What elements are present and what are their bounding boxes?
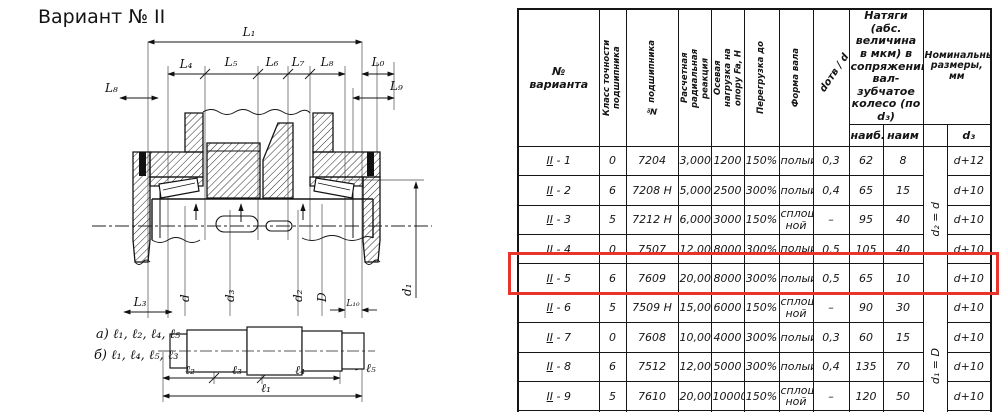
cell-nominal-mid: d₂ = d d₁ = D [923,146,947,412]
gear-tooth [263,123,293,198]
cell-radial: 20,000 [678,264,711,293]
cell-axial: 5000 [711,352,744,381]
cell-overload: 150% [744,293,779,322]
cell-tension-min: 30 [883,293,923,322]
cell-tension-min: 70 [883,352,923,381]
cell-shape: полый [779,323,813,352]
cell-d3: d+10 [947,176,991,205]
cell-axial: 10000 [711,381,744,410]
header-tension-min: наим [883,124,923,146]
cell-tension-min: 15 [883,323,923,352]
cell-variant: II - 1 [518,146,599,175]
cell-shape: сплош- ной [779,293,813,322]
cell-overload: 300% [744,176,779,205]
cell-ratio: 0,4 [813,176,849,205]
cell-bearing: 7512 [626,352,678,381]
cell-class: 0 [599,146,626,175]
dim-label-l2: ℓ₂ [185,363,195,377]
cell-d3: d+12 [947,146,991,175]
break-line-top [203,110,310,115]
cell-d3: d+10 [947,352,991,381]
cell-d3: d+10 [947,205,991,234]
dim-label-L4: L₄ [179,57,193,71]
header-nominal-mid [923,124,947,146]
cell-shape: сплош- ной [779,205,813,234]
dim-label-l5: ℓ₅ [366,361,376,375]
dim-label-L6: L₆ [265,55,279,69]
cell-variant: II - 4 [518,234,599,263]
cell-overload: 300% [744,264,779,293]
cell-radial: 3,000 [678,146,711,175]
cell-bearing: 7608 [626,323,678,352]
table-row-highlighted: II - 6 5 7509 Н 15,000 6000 150% сплош- … [518,293,991,322]
cell-tension-min: 40 [883,234,923,263]
header-overload: Перегрузка до [744,9,779,146]
cell-overload: 150% [744,146,779,175]
cell-variant: II - 7 [518,323,599,352]
nominal-mid-bottom: d₁ = D [929,348,942,384]
cell-tension-max: 105 [849,234,883,263]
dim-label-L1: L₁ [242,25,256,39]
cell-ratio: 0,4 [813,352,849,381]
cell-ratio: 0,3 [813,146,849,175]
cell-tension-min: 8 [883,146,923,175]
cell-axial: 8000 [711,234,744,263]
keyway-large [216,216,258,232]
cell-d3: d+10 [947,381,991,410]
cell-ratio: 0,5 [813,264,849,293]
cell-axial: 4000 [711,323,744,352]
cell-tension-max: 65 [849,264,883,293]
cell-axial: 3000 [711,205,744,234]
cell-tension-max: 135 [849,352,883,381]
header-shaft-form: Форма вала [779,9,813,146]
cell-variant: II - 9 [518,381,599,410]
reaction-arrows [196,204,303,222]
cell-bearing: 7204 [626,146,678,175]
cell-class: 0 [599,234,626,263]
header-tension-group: Натяги (абс. величина в мкм) в сопряжени… [849,9,923,124]
dim-label-d1: d₁ [400,284,414,297]
dim-label-L9: L₉ [389,79,403,93]
dim-label-l1: ℓ₁ [261,381,271,395]
dim-label-d: d [178,294,192,302]
cell-tension-max: 120 [849,381,883,410]
cell-radial: 15,000 [678,293,711,322]
dim-label-l3: ℓ₃ [232,363,242,377]
dim-label-d2: d₂ [291,289,305,302]
cell-tension-max: 65 [849,176,883,205]
cell-bearing: 7208 Н [626,176,678,205]
cell-tension-max: 60 [849,323,883,352]
cell-overload: 300% [744,323,779,352]
table-row: II - 2 6 7208 Н 5,000 2500 300% полый 0,… [518,176,991,205]
header-hole-ratio: dотв / d [813,9,849,146]
cell-variant: II - 5 [518,264,599,293]
table-row: II - 1 0 7204 3,000 1200 150% полый 0,3 … [518,146,991,175]
cell-radial: 10,000 [678,323,711,352]
cell-overload: 300% [744,234,779,263]
cell-variant: II - 3 [518,205,599,234]
assembly-drawing: L₁ L₄ L₅ L₆ L₇ L₈ L₀ L₉ L₈ L₃ L₁₀ d d₃ d… [0,0,505,412]
cell-overload: 150% [744,381,779,410]
cell-ratio: – [813,205,849,234]
table-row: II - 7 0 7608 10,000 4000 300% полый 0,3… [518,323,991,352]
dim-label-d3: d₃ [223,289,237,302]
break-line-shaft-left [152,238,200,243]
cell-variant: II - 6 [518,293,599,322]
cell-variant: II - 8 [518,352,599,381]
cell-class: 5 [599,293,626,322]
header-nominal-d3: d₃ [947,124,991,146]
dim-label-l4: ℓ₄ [295,363,305,377]
header-bearing-no: № подшипника [626,9,678,146]
cell-d3: d+10 [947,323,991,352]
cell-tension-min: 50 [883,381,923,410]
header-row: № варианта Класс точности подшипника № п… [518,9,991,124]
header-tension-max: наиб. [849,124,883,146]
table-row: II - 5 6 7609 20,000 8000 300% полый 0,5… [518,264,991,293]
cell-d3: d+10 [947,264,991,293]
note-a: а) ℓ₁, ℓ₂, ℓ₄, ℓ₅ [96,327,181,342]
cell-ratio: 0,5 [813,234,849,263]
note-b: б) ℓ₁, ℓ₄, ℓ₅, ℓ₃ [94,348,178,363]
cell-class: 6 [599,352,626,381]
cell-overload: 300% [744,352,779,381]
cell-tension-min: 40 [883,205,923,234]
cell-bearing: 7609 [626,264,678,293]
table-row: II - 8 6 7512 12,000 5000 300% полый 0,4… [518,352,991,381]
variants-table: № варианта Класс точности подшипника № п… [517,8,992,412]
cell-shape: полый [779,146,813,175]
cell-radial: 12,000 [678,234,711,263]
cell-axial: 2500 [711,176,744,205]
header-nominal-group: Номинальные размеры, мм [923,9,991,124]
cell-tension-max: 90 [849,293,883,322]
cell-bearing: 7610 [626,381,678,410]
cell-ratio: 0,3 [813,323,849,352]
cell-axial: 8000 [711,264,744,293]
header-accuracy-class: Класс точности подшипника [599,9,626,146]
cell-axial: 6000 [711,293,744,322]
cell-shape: сплош- ной [779,381,813,410]
dim-label-L0: L₀ [371,55,385,69]
cell-radial: 5,000 [678,176,711,205]
cell-variant: II - 2 [518,176,599,205]
cell-radial: 20,000 [678,381,711,410]
dim-label-L8-top: L₈ [320,55,334,69]
dim-label-L10: L₁₀ [345,299,360,309]
cell-ratio: – [813,293,849,322]
cell-radial: 12,000 [678,352,711,381]
cell-tension-min: 10 [883,264,923,293]
cell-bearing: 7507 [626,234,678,263]
cell-overload: 150% [744,205,779,234]
header-radial-reaction: Расчетная радиальная реакция опоры, Fr, … [678,9,711,146]
table-row: II - 9 5 7610 20,000 10000 150% сплош- н… [518,381,991,410]
table-row: II - 4 0 7507 12,000 8000 300% полый 0,5… [518,234,991,263]
cell-d3: d+10 [947,234,991,263]
cell-class: 6 [599,176,626,205]
document-page: Вариант № II [0,0,1000,412]
cell-ratio: – [813,381,849,410]
header-axial-load: Осевая нагрузка на опору Fa, Н [711,9,744,146]
dim-label-L3: L₃ [133,295,147,309]
cell-shape: полый [779,264,813,293]
dim-label-D: D [315,292,329,303]
cell-class: 5 [599,381,626,410]
nominal-mid-top: d₂ = d [929,202,942,237]
cell-class: 5 [599,205,626,234]
cell-class: 0 [599,323,626,352]
cell-bearing: 7509 Н [626,293,678,322]
cell-shape: полый [779,352,813,381]
cell-shape: полый [779,234,813,263]
header-variant: № варианта [518,9,599,146]
dim-label-L5: L₅ [224,55,238,69]
cell-d3: d+10 [947,293,991,322]
cell-tension-max: 62 [849,146,883,175]
cell-axial: 1200 [711,146,744,175]
dim-label-L7: L₇ [291,55,305,69]
dim-label-L8-left: L₈ [104,81,118,95]
table-row: II - 3 5 7212 Н 6,000 3000 150% сплош- н… [518,205,991,234]
cell-radial: 6,000 [678,205,711,234]
cell-tension-min: 15 [883,176,923,205]
cell-bearing: 7212 Н [626,205,678,234]
cell-tension-max: 95 [849,205,883,234]
cell-class: 6 [599,264,626,293]
cell-shape: полый [779,176,813,205]
